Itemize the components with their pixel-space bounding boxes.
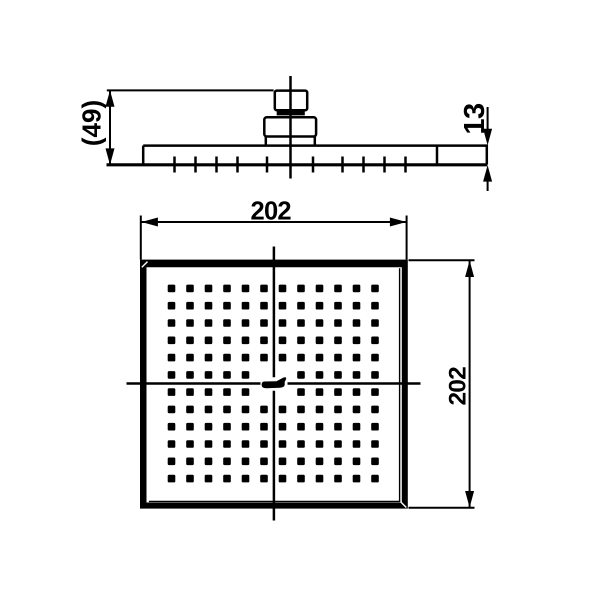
svg-text:202: 202 <box>250 198 291 226</box>
svg-text:(49): (49) <box>77 100 107 146</box>
svg-text:202: 202 <box>445 367 472 406</box>
svg-text:13: 13 <box>459 103 491 135</box>
